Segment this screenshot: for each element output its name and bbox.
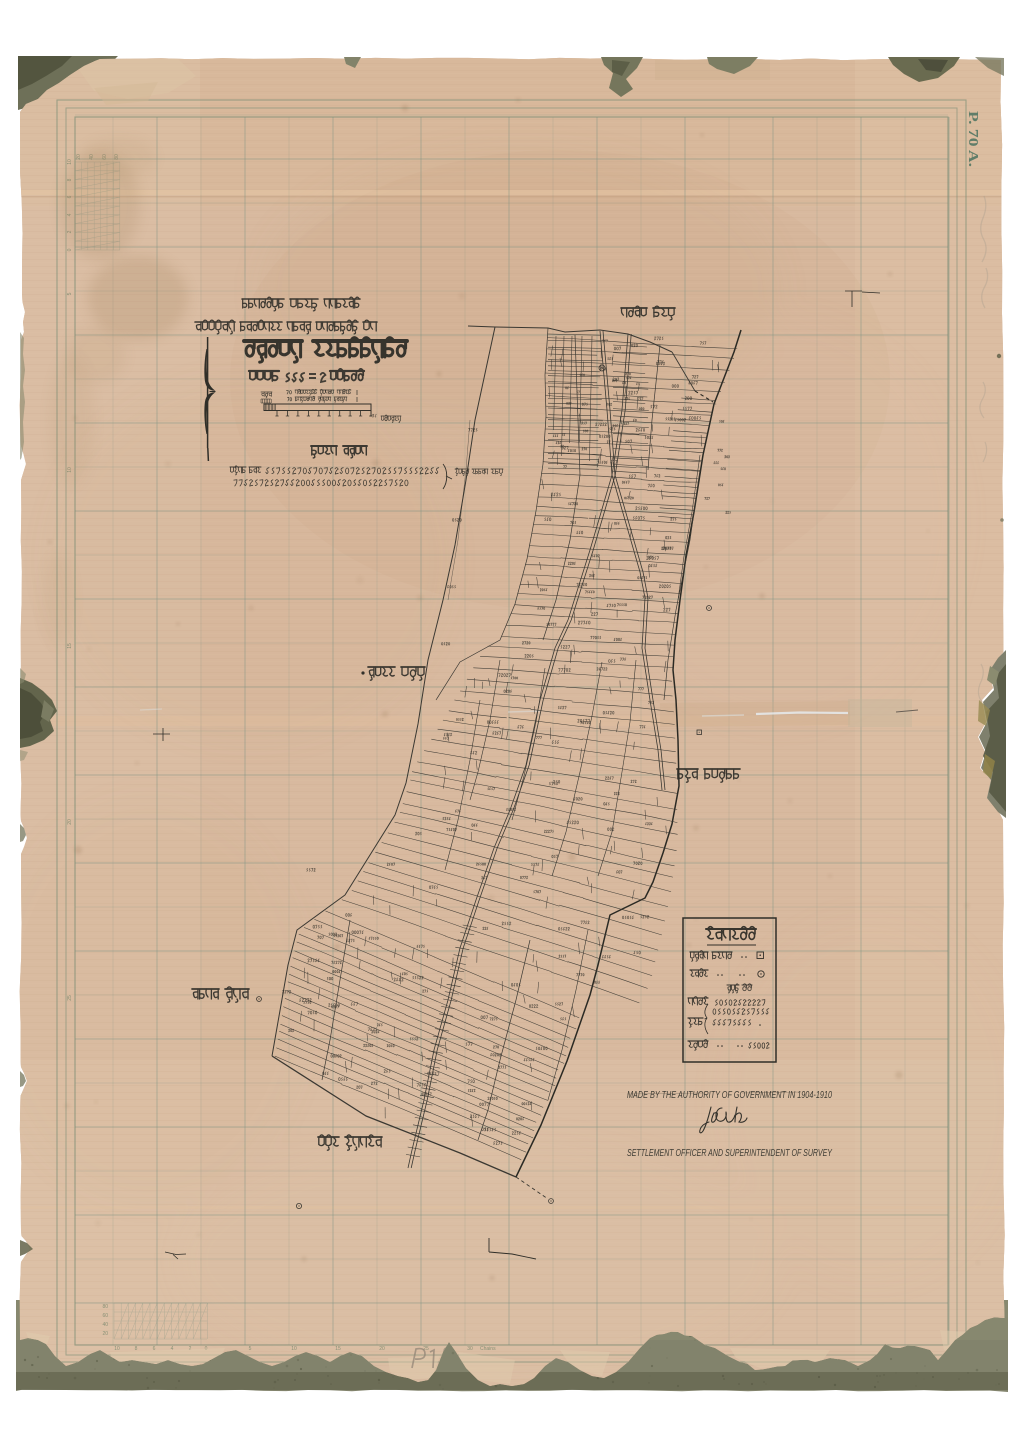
svg-text:20: 20: [102, 1331, 108, 1337]
svg-text:5: 5: [67, 292, 73, 295]
svg-text:Chains: Chains: [480, 1346, 496, 1352]
svg-text:20: 20: [379, 1346, 385, 1352]
svg-text:P. 70 A.: P. 70 A.: [966, 111, 981, 167]
svg-text:15: 15: [335, 1346, 341, 1352]
svg-text:15: 15: [67, 643, 73, 649]
svg-text:0: 0: [67, 248, 73, 251]
svg-text:5: 5: [249, 1346, 252, 1352]
svg-text:80: 80: [102, 1304, 108, 1310]
svg-text:30: 30: [467, 1346, 473, 1352]
svg-text:60: 60: [102, 1313, 108, 1319]
svg-text:MADE BY THE AUTHORITY OF GOVER: MADE BY THE AUTHORITY OF GOVERNMENT IN 1…: [627, 1090, 832, 1101]
svg-text:20: 20: [67, 819, 73, 825]
svg-text:10: 10: [67, 159, 73, 165]
svg-text:10: 10: [114, 1346, 120, 1352]
svg-text:SETTLEMENT OFFICER AND SUPERIN: SETTLEMENT OFFICER AND SUPERINTENDENT OF…: [627, 1148, 833, 1159]
svg-text:25: 25: [67, 995, 73, 1001]
svg-text:40: 40: [102, 1322, 108, 1328]
svg-text:10: 10: [291, 1346, 297, 1352]
